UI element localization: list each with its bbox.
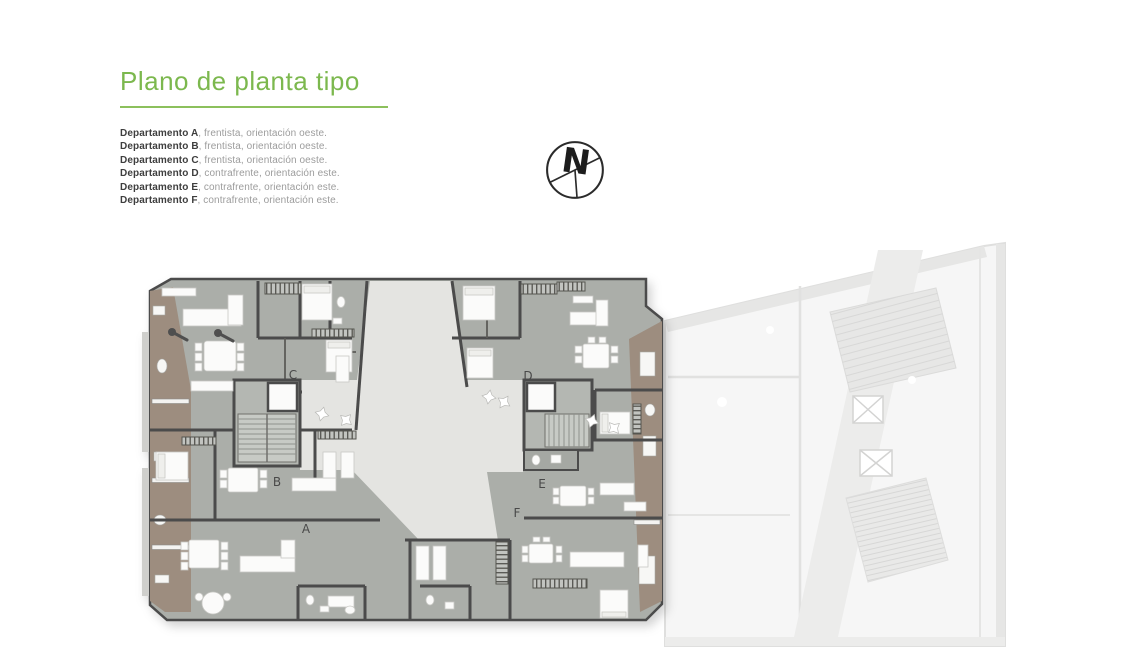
unit-label-b: B xyxy=(273,475,281,489)
unit-label-a: A xyxy=(302,522,311,536)
unit-label-c: C xyxy=(289,368,297,382)
unit-label-e: E xyxy=(538,477,546,491)
stair-core-left xyxy=(234,380,300,466)
page: Plano de planta tipo Departamento A, fre… xyxy=(0,0,1123,670)
ghost-bottom-wall xyxy=(665,637,1005,646)
ghost-right-wall xyxy=(996,244,1005,646)
ghost-building xyxy=(665,243,1005,646)
elevator-right xyxy=(527,383,555,411)
floor-plan: A B C D E F xyxy=(0,0,1123,670)
elevator-left xyxy=(268,383,297,411)
unit-label-f: F xyxy=(514,506,521,520)
unit-label-d: D xyxy=(523,369,532,383)
main-building: A B C D E F xyxy=(142,279,662,620)
